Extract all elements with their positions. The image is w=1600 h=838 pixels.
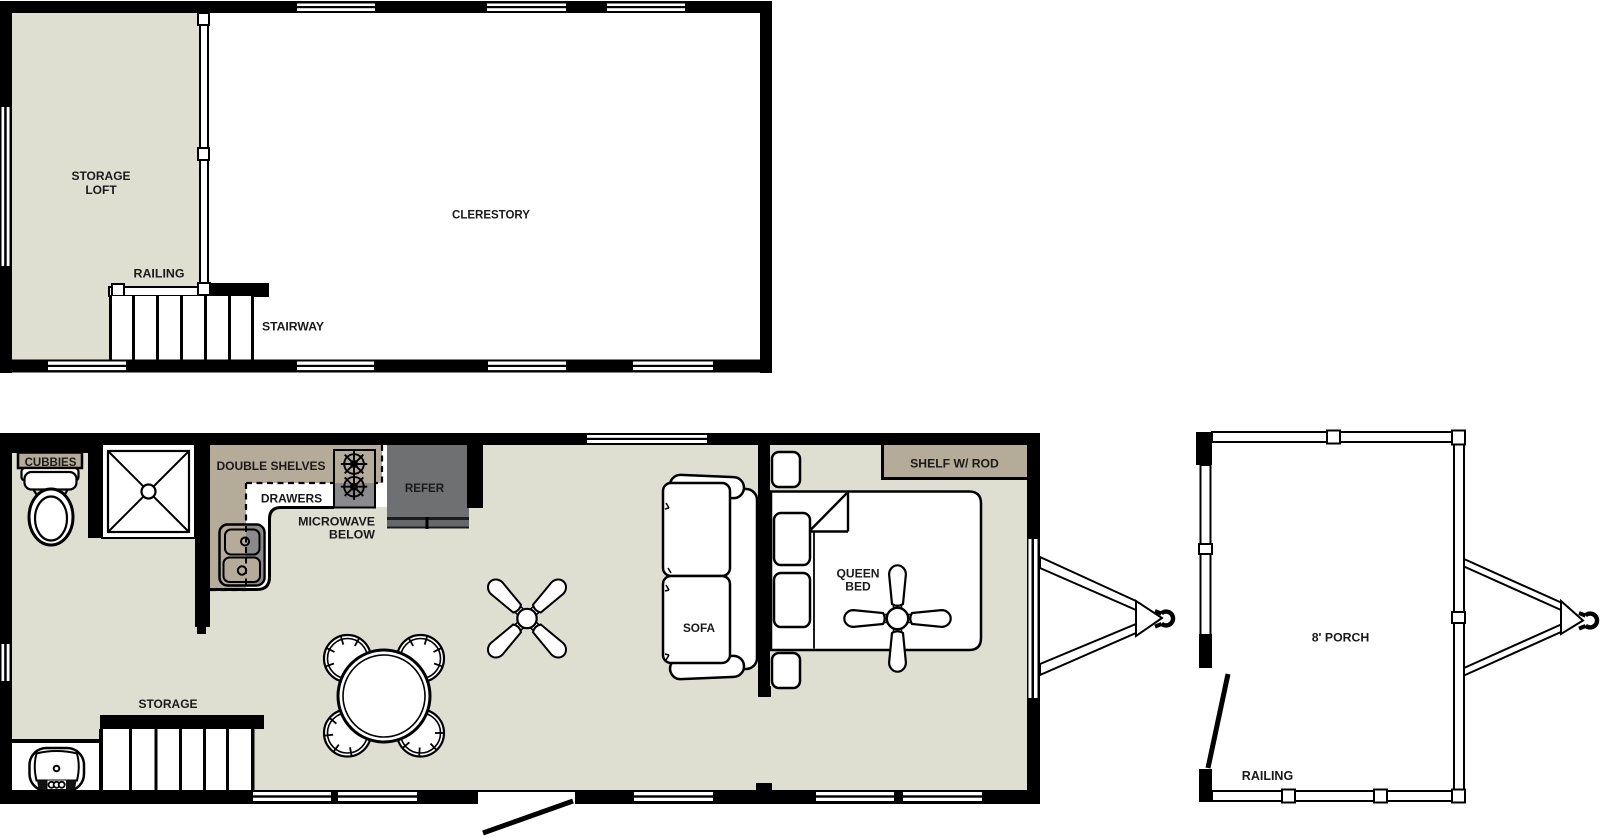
- svg-text:STORAGE: STORAGE: [71, 169, 130, 183]
- svg-text:8' PORCH: 8' PORCH: [1312, 631, 1370, 645]
- svg-text:QUEEN: QUEEN: [836, 567, 879, 581]
- svg-text:SHELF W/ ROD: SHELF W/ ROD: [910, 457, 999, 471]
- svg-text:LOFT: LOFT: [85, 183, 117, 197]
- svg-text:REFER: REFER: [405, 482, 445, 495]
- svg-text:BED: BED: [845, 580, 871, 594]
- svg-text:CLERESTORY: CLERESTORY: [452, 210, 530, 222]
- svg-text:STORAGE: STORAGE: [138, 697, 197, 711]
- svg-text:SOFA: SOFA: [683, 621, 716, 635]
- svg-text:MICROWAVE: MICROWAVE: [298, 515, 375, 529]
- svg-text:STAIRWAY: STAIRWAY: [262, 320, 324, 334]
- svg-text:BELOW: BELOW: [329, 528, 375, 542]
- svg-text:RAILING: RAILING: [134, 267, 185, 281]
- svg-text:DOUBLE SHELVES: DOUBLE SHELVES: [216, 459, 325, 473]
- svg-text:RAILING: RAILING: [1242, 769, 1293, 783]
- svg-text:DRAWERS: DRAWERS: [261, 492, 322, 506]
